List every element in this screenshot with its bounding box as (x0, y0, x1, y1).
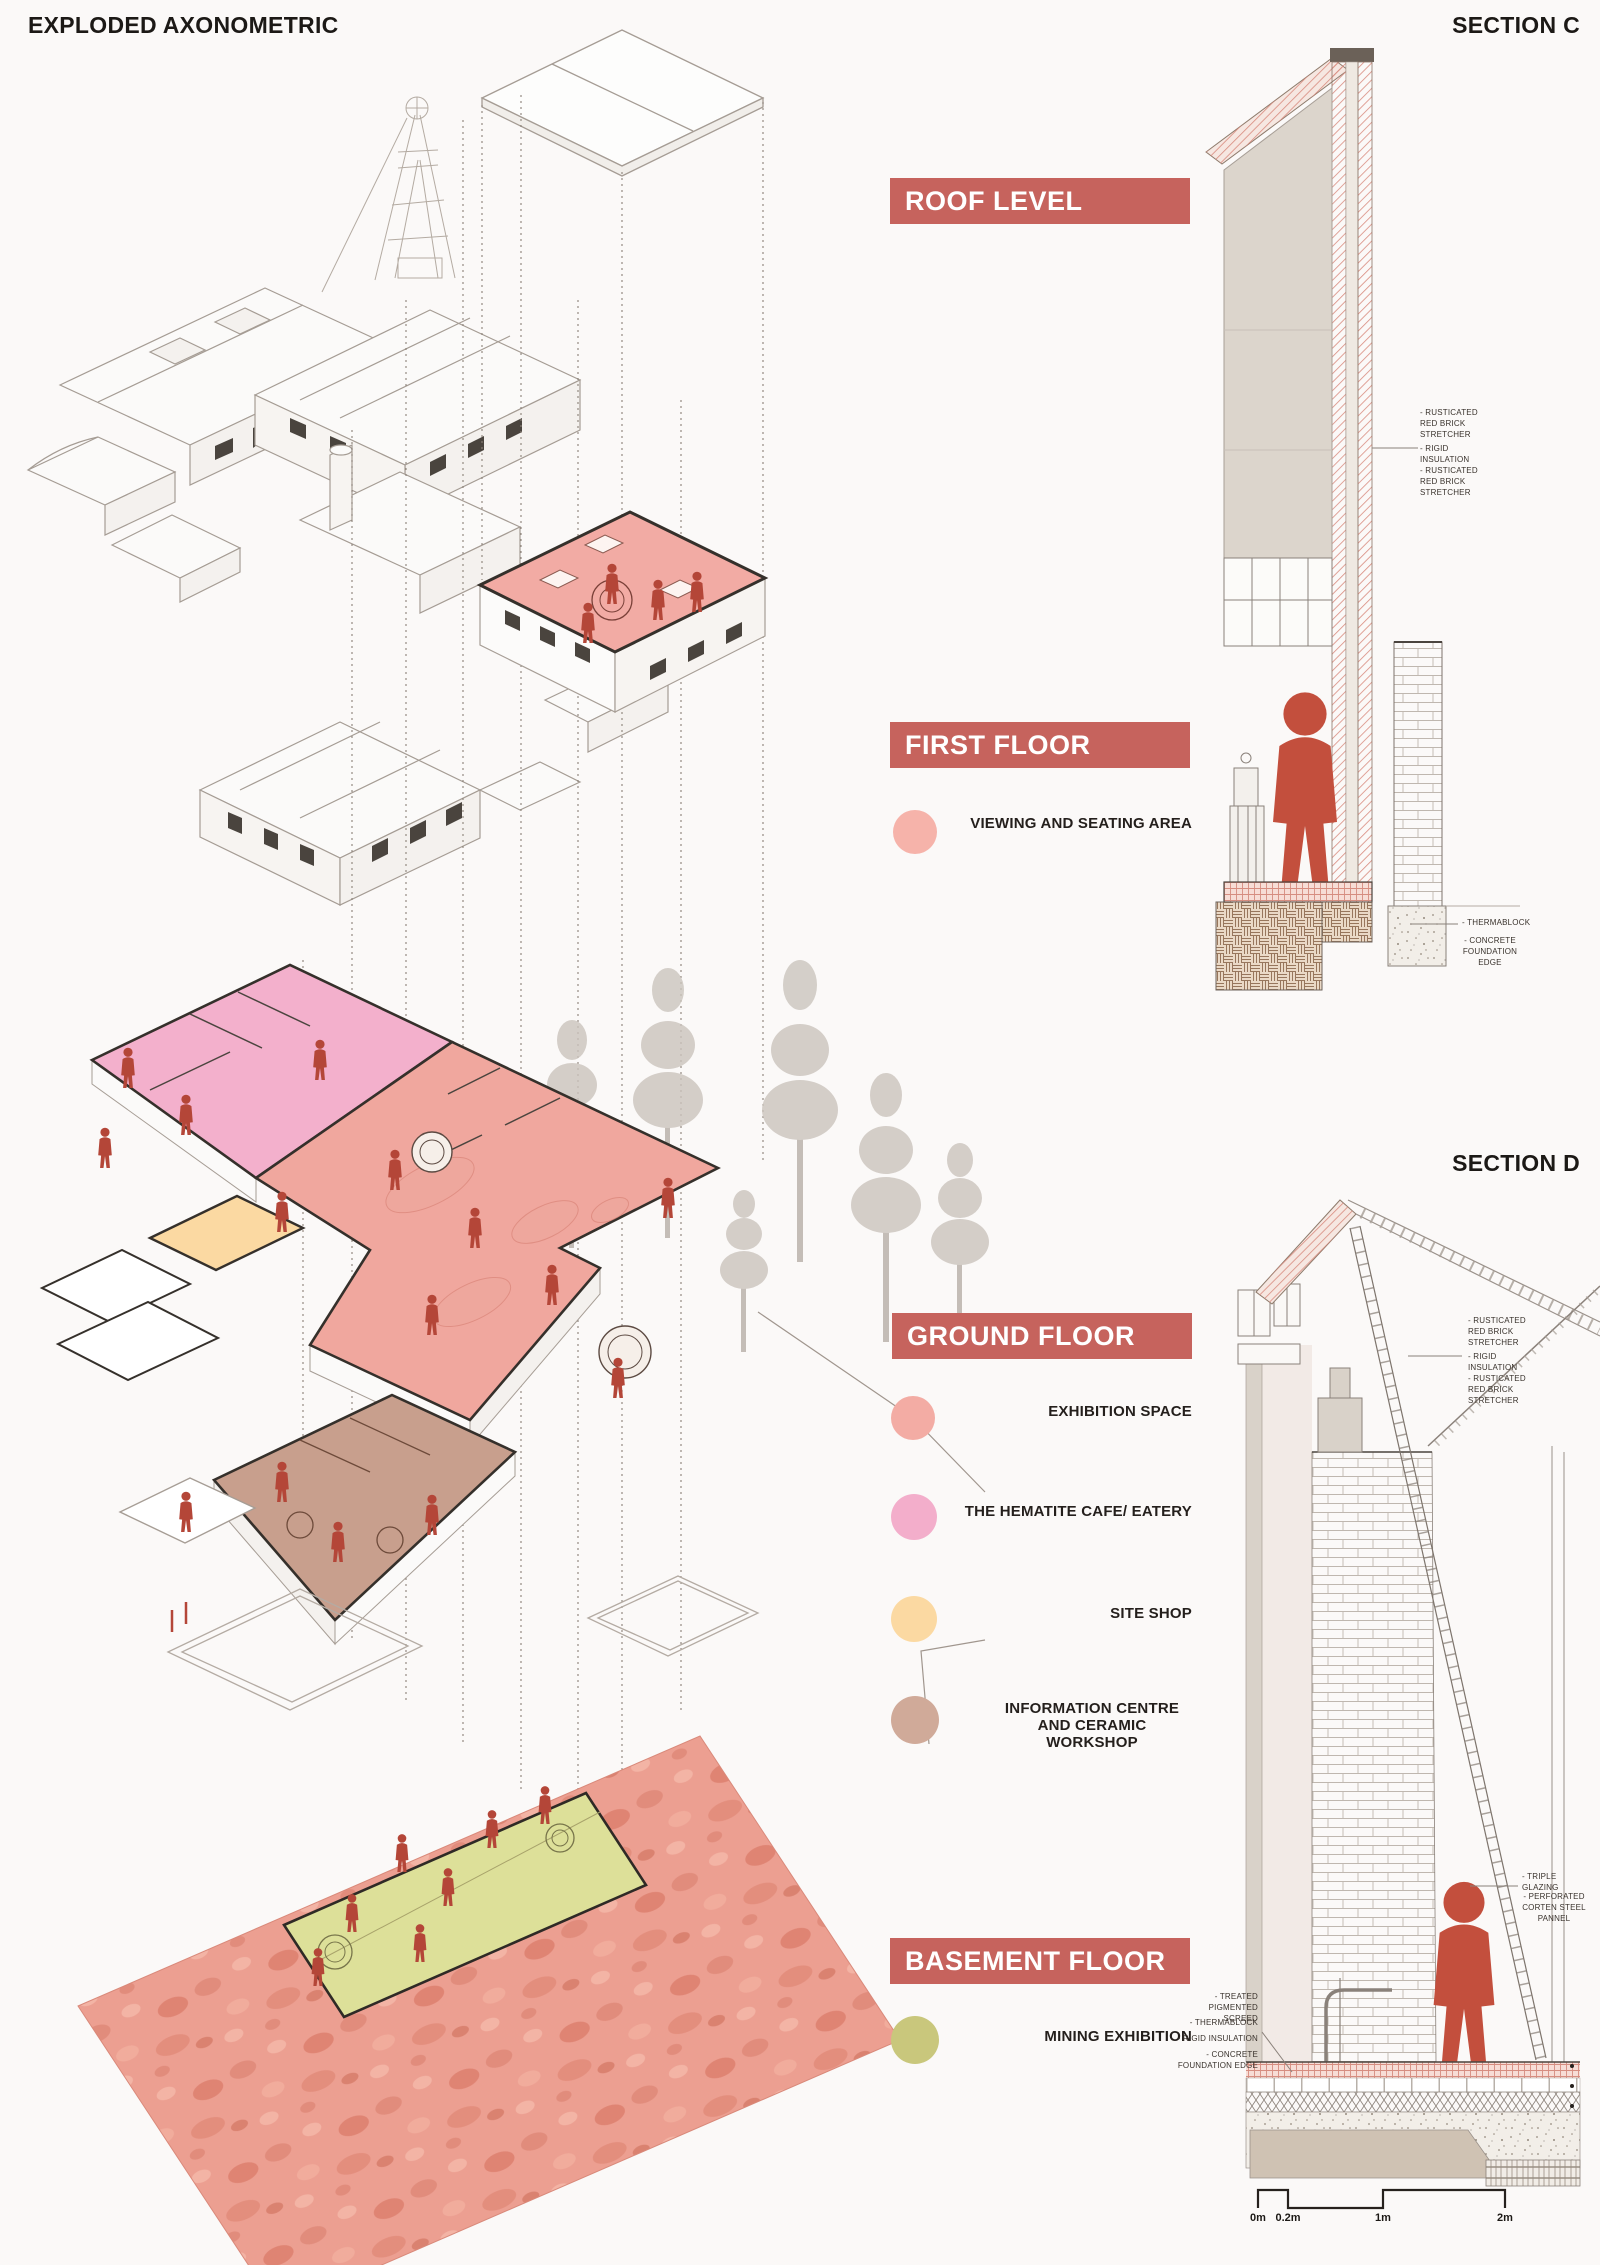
legend-label-hematite-cafe: THE HEMATITE CAFE/ EATERY (960, 1503, 1192, 1520)
annotation-c-brick-1: - RUSTICATED RED BRICK STRETCHER (1420, 408, 1486, 440)
banner-ground-floor: GROUND FLOOR (892, 1313, 1192, 1359)
banner-basement-floor: BASEMENT FLOOR (890, 1938, 1190, 1984)
first-floor-plate (480, 512, 765, 712)
annotation-c-brick-2: - RUSTICATED RED BRICK STRETCHER (1420, 466, 1486, 498)
legend-label-viewing-seating: VIEWING AND SEATING AREA (960, 815, 1192, 832)
section-c-figure (1273, 692, 1337, 882)
scale-label-2m: 2m (1487, 2212, 1523, 2224)
axonometric-drawing (28, 30, 989, 2265)
scale-bar-line (1258, 2190, 1505, 2208)
legend-leader-lines (758, 1312, 985, 1744)
annotation-c-thermablock: - THERMABLOCK (1462, 918, 1532, 929)
annotation-d-corten-panel: - PERFORATED CORTEN STEEL PANNEL (1516, 1892, 1592, 1924)
legend-dot-mining-exhibition (891, 2016, 939, 2064)
annotation-c-foundation: - CONCRETE FOUNDATION EDGE (1450, 936, 1530, 968)
banner-roof-level: ROOF LEVEL (890, 178, 1190, 224)
legend-label-exhibition-space: EXHIBITION SPACE (960, 1403, 1192, 1420)
legend-dot-site-shop (891, 1596, 937, 1642)
section-c-drawing (1206, 48, 1520, 990)
section-c-title: SECTION C (1360, 12, 1580, 39)
annotation-d-thermablock: - THERMABLOCK (1172, 2018, 1258, 2029)
section-d-figure (1434, 1882, 1495, 2062)
annotation-c-insulation: - RIGID INSULATION (1420, 444, 1486, 466)
scale-label-02m: 0.2m (1266, 2212, 1310, 2224)
drawing-canvas (0, 0, 1600, 2265)
annotation-d-foundation: - CONCRETE FOUNDATION EDGE (1172, 2050, 1258, 2072)
annotation-d-brick-1: - RUSTICATED RED BRICK STRETCHER (1468, 1316, 1534, 1348)
scale-label-1m: 1m (1365, 2212, 1401, 2224)
annotation-d-triple-glazing: - TRIPLE GLAZING (1522, 1872, 1592, 1894)
annotation-d-insulation: - RIGID INSULATION (1468, 1352, 1534, 1374)
presentation-sheet: EXPLODED AXONOMETRIC SECTION C SECTION D… (0, 0, 1600, 2265)
legend-label-site-shop: SITE SHOP (960, 1605, 1192, 1622)
page-title: EXPLODED AXONOMETRIC (28, 12, 339, 39)
legend-label-mining-exhibition: MINING EXHIBITION (960, 2028, 1192, 2045)
legend-dot-viewing-seating (893, 810, 937, 854)
legend-dot-hematite-cafe (891, 1494, 937, 1540)
info-centre-plate (120, 1395, 515, 1644)
section-d-title: SECTION D (1360, 1150, 1580, 1177)
annotation-d-brick-2: - RUSTICATED RED BRICK STRETCHER (1468, 1374, 1534, 1406)
legend-dot-exhibition-space (891, 1396, 935, 1440)
legend-dot-info-centre (891, 1696, 939, 1744)
section-d-drawing (1238, 1200, 1600, 2186)
banner-first-floor: FIRST FLOOR (890, 722, 1190, 768)
legend-label-info-centre: INFORMATION CENTRE AND CERAMIC WORKSHOP (992, 1700, 1192, 1751)
annotation-d-rigid-insulation: - RIGID INSULATION (1172, 2034, 1258, 2045)
